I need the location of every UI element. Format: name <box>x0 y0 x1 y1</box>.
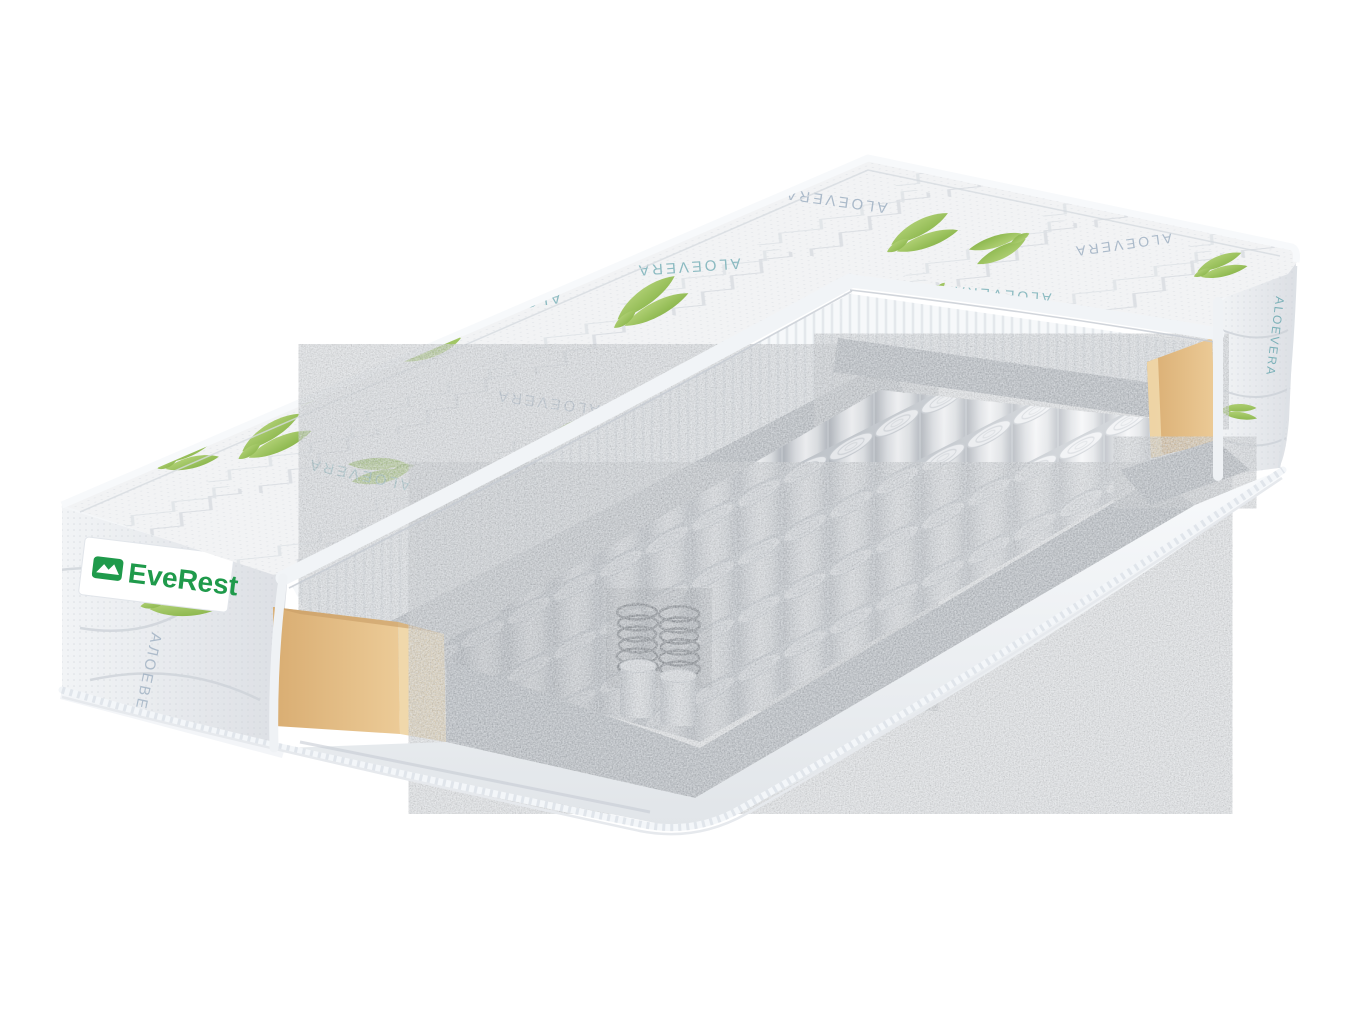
bed-icon <box>91 556 123 581</box>
product-image: ALOEVERA АЛОЕВЕРА EveRest <box>0 0 1350 1012</box>
mattress-cutaway-render: ALOEVERA АЛОЕВЕРА EveRest <box>0 0 1350 1012</box>
edge-foam-end <box>398 622 446 742</box>
edge-foam-face <box>273 607 400 734</box>
